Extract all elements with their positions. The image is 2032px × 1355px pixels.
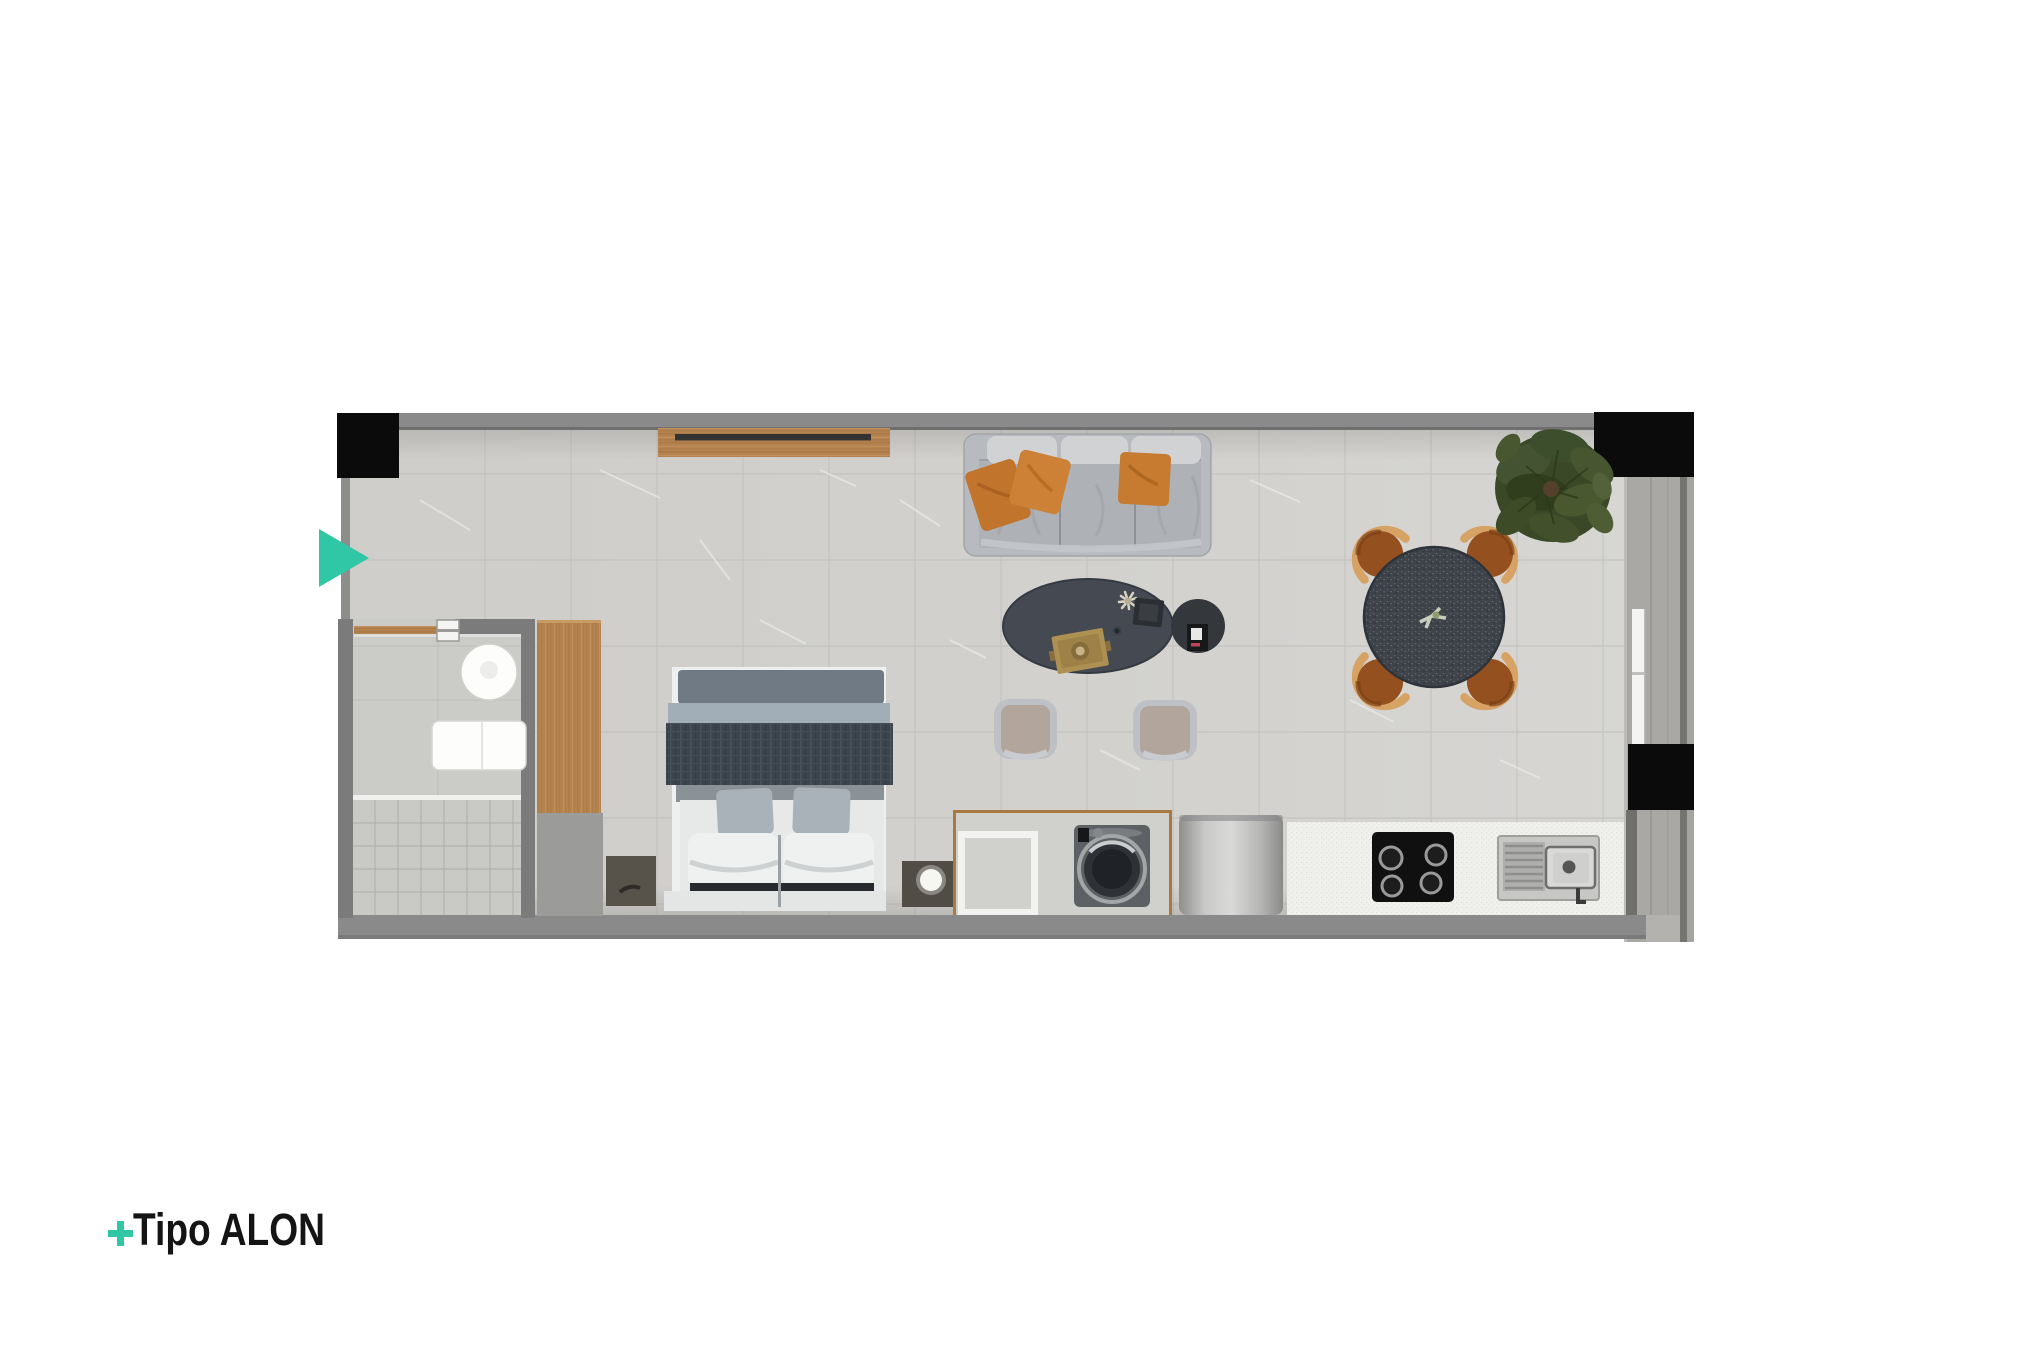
svg-text:Tipo ALON: Tipo ALON [133, 1204, 325, 1255]
